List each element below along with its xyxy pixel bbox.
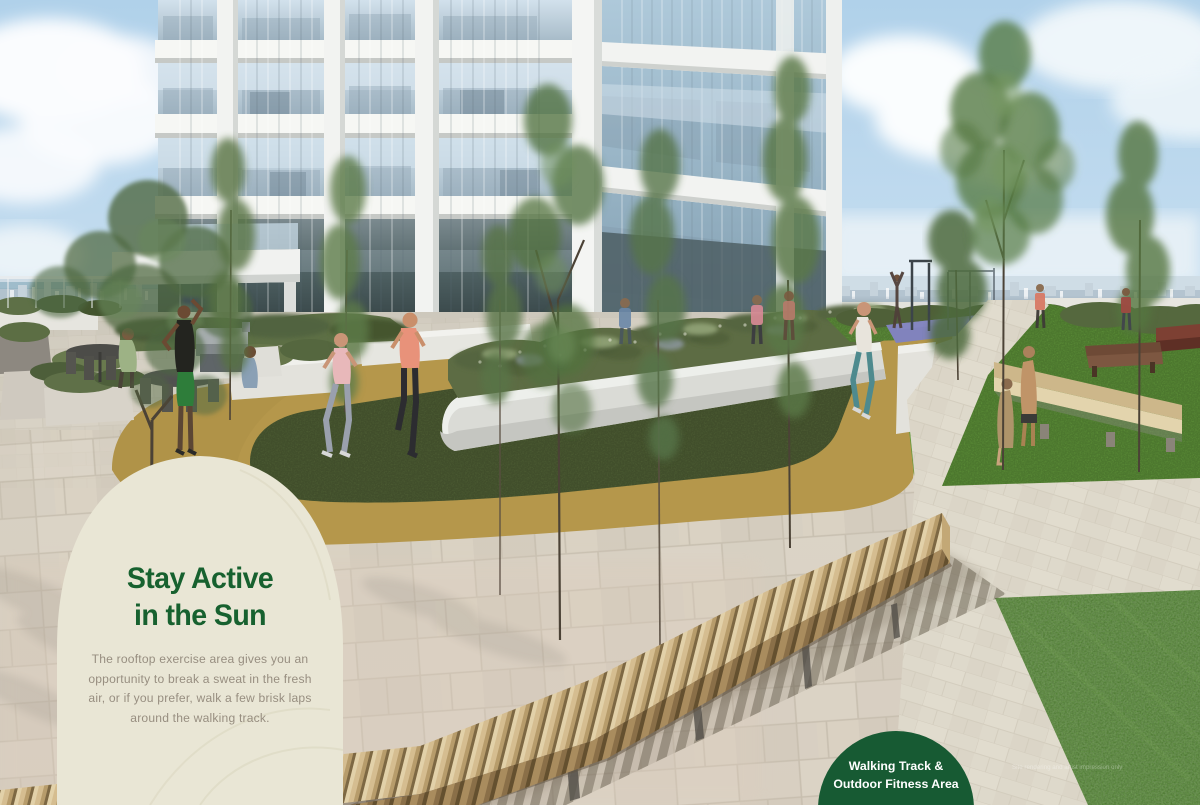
svg-text:Site rendering and artist impr: Site rendering and artist impression onl…	[1012, 764, 1123, 771]
